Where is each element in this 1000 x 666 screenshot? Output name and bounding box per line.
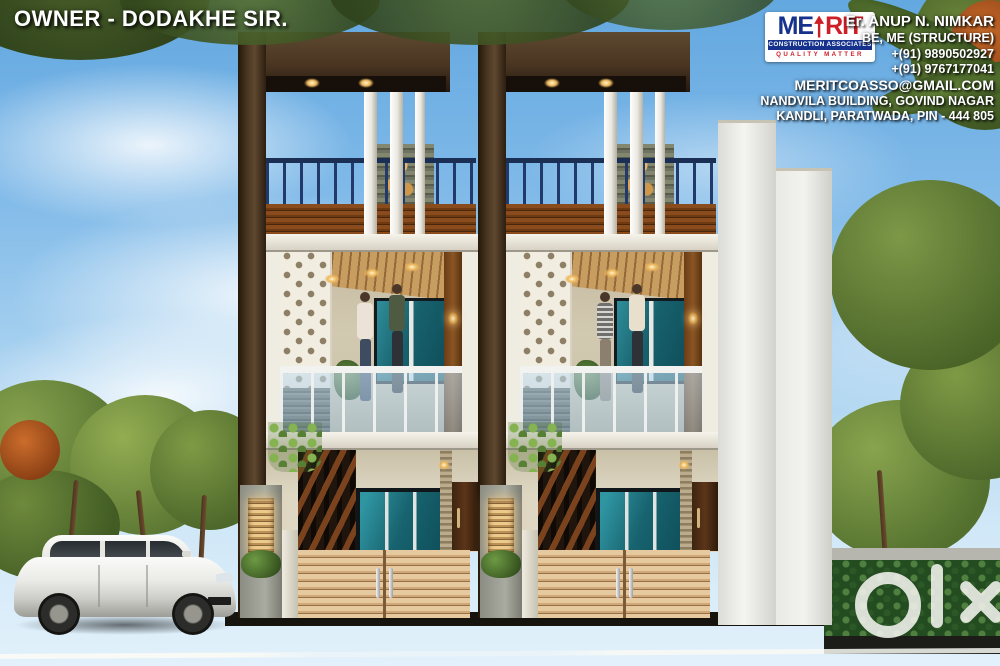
shrub — [241, 550, 281, 578]
email-address: MERITCOASSO@GMAIL.COM — [760, 77, 994, 94]
duplex-house — [478, 30, 718, 626]
white-pillar — [364, 90, 377, 236]
engineer-name: Er. ANUP N. NIMKAR — [760, 13, 994, 31]
balcony-frame-left — [506, 250, 520, 432]
white-pillar — [604, 90, 617, 236]
person-torso — [597, 303, 613, 339]
car-front-wheel — [172, 593, 214, 635]
ceiling-downlight — [644, 262, 660, 272]
door-handle — [697, 508, 700, 528]
first-floor-slab — [248, 234, 478, 252]
olx-o-glyph — [855, 572, 921, 638]
wall-sconce-light — [688, 312, 698, 325]
ceiling-downlight — [404, 262, 420, 272]
balcony-frame-right — [462, 250, 478, 432]
flowering-tree — [0, 420, 60, 480]
person-torso — [629, 295, 645, 331]
person-head — [392, 284, 402, 294]
car-door-line — [98, 565, 100, 607]
gate-split-line — [623, 550, 626, 623]
address-line-1: NANDVILA BUILDING, GOVIND NAGAR — [760, 94, 994, 109]
gate-handle — [629, 568, 633, 598]
shrub — [481, 550, 521, 578]
olx-x-glyph — [953, 574, 1000, 630]
soffit-downlight — [598, 78, 614, 88]
gate-split-line — [383, 550, 386, 623]
white-pillar — [655, 90, 665, 236]
car-door-line — [146, 565, 148, 607]
person-head — [360, 292, 370, 302]
wall-sconce-light — [448, 312, 458, 325]
gate-handle — [616, 568, 620, 598]
car-rear-wheel — [38, 593, 80, 635]
white-pillar — [415, 90, 425, 236]
phone-number-2: +(91) 9767177041 — [760, 62, 994, 77]
ground-floor-window — [356, 488, 448, 558]
hanging-vines — [508, 422, 562, 472]
left-house — [238, 30, 478, 626]
white-pillar — [390, 90, 403, 236]
person-torso — [389, 295, 405, 331]
contact-block: Er. ANUP N. NIMKAR BE, ME (STRUCTURE) +(… — [760, 13, 994, 125]
engineer-qualification: BE, ME (STRUCTURE) — [760, 31, 994, 46]
pergola-soffit — [264, 76, 446, 92]
right-house — [478, 30, 718, 626]
balcony-frame-left — [266, 250, 280, 432]
road-lane-line — [0, 648, 1000, 659]
soffit-downlight — [544, 78, 560, 88]
phone-number-1: +(91) 9890502927 — [760, 47, 994, 62]
pergola-soffit — [504, 76, 686, 92]
main-door — [692, 482, 718, 551]
white-pillar — [630, 90, 643, 236]
owner-caption: OWNER - DODAKHE SIR. — [14, 6, 288, 32]
ceiling-downlight — [604, 268, 620, 278]
olx-l-glyph — [931, 564, 943, 628]
gate-handle — [376, 568, 380, 598]
lit-stone-niche — [248, 498, 274, 556]
stone-strip-light — [438, 460, 450, 470]
main-door — [452, 482, 478, 551]
door-handle — [457, 508, 460, 528]
car-mirror — [182, 551, 191, 557]
hanging-vines — [268, 422, 322, 472]
duplex-house — [238, 30, 478, 626]
white-hatchback-car — [14, 535, 236, 640]
gate-handle — [389, 568, 393, 598]
balcony-frame-right — [702, 250, 718, 432]
gate-post — [282, 530, 298, 623]
ground-floor-window — [596, 488, 688, 558]
side-parapet-wall — [776, 168, 832, 625]
ceiling-downlight — [564, 274, 580, 284]
stone-strip-light — [678, 460, 690, 470]
soffit-downlight — [358, 78, 374, 88]
lit-stone-niche — [488, 498, 514, 556]
side-parapet-wall — [718, 120, 776, 625]
address-line-2: KANDLI, PARATWADA, PIN - 444 805 — [760, 109, 994, 124]
soffit-downlight — [304, 78, 320, 88]
ceiling-downlight — [364, 268, 380, 278]
person-head — [632, 284, 642, 294]
architectural-render: OWNER - DODAKHE SIR. MERIT CONSTRUCTION … — [0, 0, 1000, 666]
olx-watermark: olx — [845, 564, 1000, 638]
gate-post — [522, 530, 538, 623]
first-floor-slab — [488, 234, 718, 252]
person-head — [600, 292, 610, 302]
person-torso — [357, 303, 373, 339]
ceiling-downlight — [324, 274, 340, 284]
